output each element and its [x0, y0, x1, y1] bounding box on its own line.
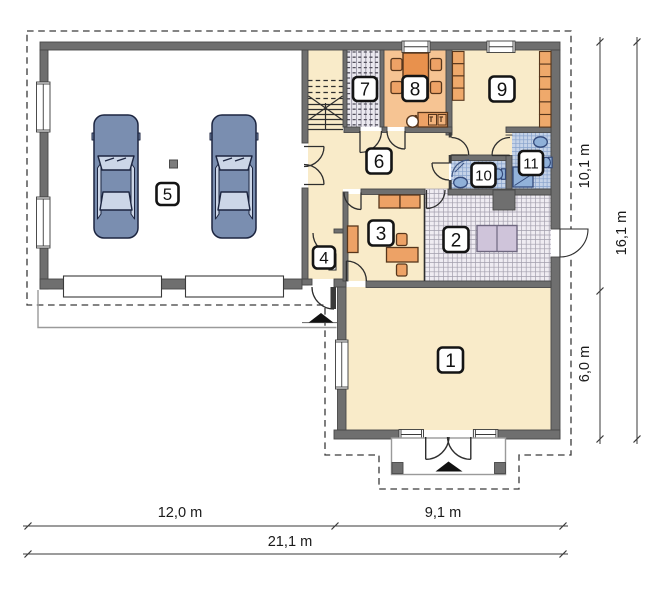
svg-text:16,1 m: 16,1 m: [614, 211, 630, 256]
svg-text:9,1 m: 9,1 m: [425, 505, 462, 521]
svg-text:3: 3: [376, 224, 387, 245]
svg-text:1: 1: [445, 351, 456, 372]
svg-text:5: 5: [163, 185, 172, 204]
svg-text:9: 9: [497, 80, 508, 101]
svg-text:8: 8: [410, 79, 421, 100]
svg-text:2: 2: [451, 230, 462, 251]
svg-text:7: 7: [360, 79, 370, 99]
svg-text:10,1 m: 10,1 m: [577, 144, 593, 189]
svg-text:21,1 m: 21,1 m: [268, 534, 313, 550]
svg-text:6,0 m: 6,0 m: [577, 346, 593, 383]
svg-text:6: 6: [374, 152, 385, 173]
svg-text:11: 11: [523, 155, 539, 172]
svg-text:10: 10: [475, 167, 492, 184]
svg-text:12,0 m: 12,0 m: [158, 505, 203, 521]
svg-text:4: 4: [319, 249, 328, 268]
